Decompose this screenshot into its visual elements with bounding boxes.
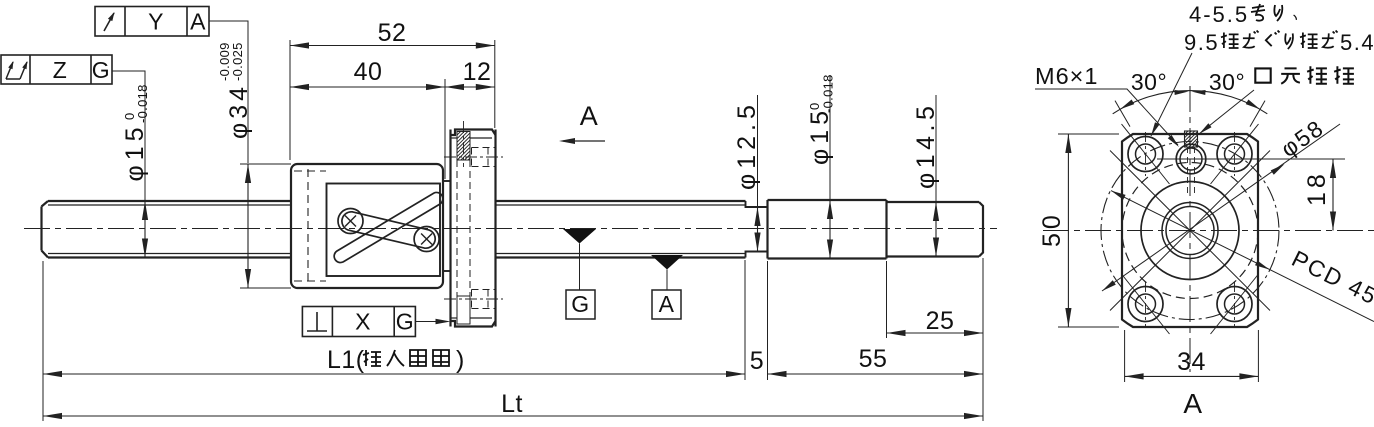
svg-text:-0.018: -0.018 xyxy=(821,74,836,113)
svg-text:Z: Z xyxy=(53,57,68,83)
svg-text:4-5.5: 4-5.5 xyxy=(1189,2,1249,27)
svg-text:30°: 30° xyxy=(1131,69,1167,95)
svg-text:φ14.5: φ14.5 xyxy=(912,102,940,189)
svg-text:5: 5 xyxy=(750,347,764,375)
svg-text:φ15: φ15 xyxy=(121,122,149,181)
svg-text:18: 18 xyxy=(1303,170,1331,206)
svg-text:50: 50 xyxy=(1038,211,1066,247)
svg-text:φ34: φ34 xyxy=(225,83,253,139)
svg-text:34: 34 xyxy=(1177,348,1206,376)
svg-text:φ15: φ15 xyxy=(806,106,834,165)
svg-text:X: X xyxy=(355,309,371,335)
svg-text:M6×1: M6×1 xyxy=(1035,63,1098,89)
svg-text:-0.025: -0.025 xyxy=(230,42,245,81)
svg-text:5.4: 5.4 xyxy=(1340,30,1374,55)
svg-text:A: A xyxy=(1183,388,1202,419)
svg-text:40: 40 xyxy=(354,58,383,86)
svg-text:L1(: L1( xyxy=(327,346,365,374)
svg-text:Lt: Lt xyxy=(501,390,523,418)
svg-text:G: G xyxy=(571,291,589,317)
svg-text:A: A xyxy=(659,291,675,317)
svg-text:A: A xyxy=(580,101,599,131)
svg-text:): ) xyxy=(456,346,465,374)
svg-text:55: 55 xyxy=(859,345,888,373)
svg-text:G: G xyxy=(92,57,110,83)
svg-text:-0.018: -0.018 xyxy=(135,84,150,123)
svg-text:G: G xyxy=(396,309,414,335)
svg-text:12: 12 xyxy=(463,58,492,86)
svg-text:52: 52 xyxy=(378,19,407,47)
svg-text:30°: 30° xyxy=(1209,69,1245,95)
svg-text:A: A xyxy=(190,9,206,35)
svg-text:Y: Y xyxy=(148,9,164,35)
svg-text:9.5: 9.5 xyxy=(1184,30,1219,55)
svg-text:25: 25 xyxy=(926,307,955,335)
svg-text:φ12.5: φ12.5 xyxy=(733,100,761,190)
